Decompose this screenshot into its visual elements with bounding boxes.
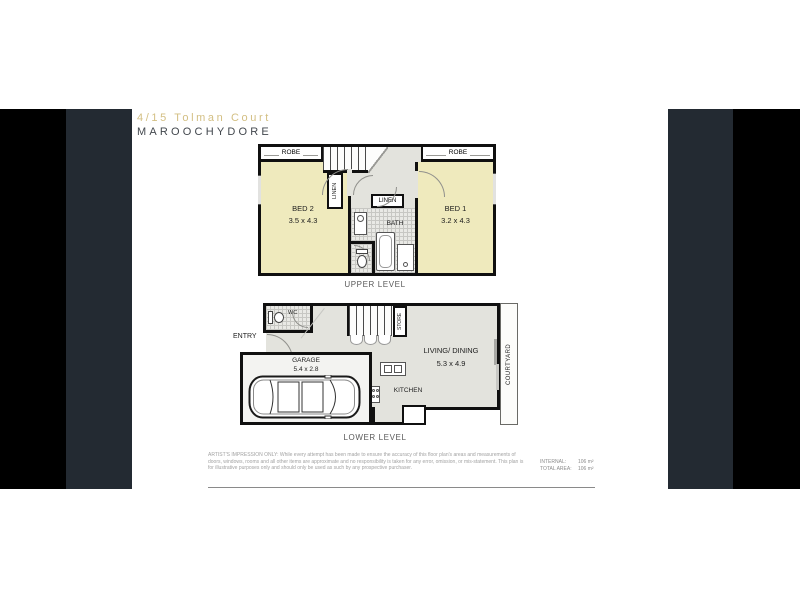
lower-level-caption: LOWER LEVEL [300, 433, 450, 442]
understair-door [364, 335, 377, 345]
total-area-value: 106 m² [578, 466, 594, 473]
island-bench [402, 405, 426, 425]
internal-area-value: 106 m² [578, 459, 594, 466]
bath-wall [372, 241, 375, 273]
left-charcoal-bar [66, 109, 132, 489]
store-label: STORE [397, 313, 403, 330]
car-icon [248, 375, 362, 419]
room-bed1: BED 1 3.2 x 4.3 [418, 162, 493, 273]
robe-right: ROBE [421, 147, 493, 162]
window [258, 175, 261, 205]
door-arc [292, 312, 308, 328]
internal-area-label: INTERNAL: [540, 459, 578, 466]
room-bath: BATH [351, 208, 415, 273]
bed2-dims: 3.5 x 4.3 [261, 216, 345, 225]
entry-label: ENTRY [233, 333, 257, 340]
store-box: STORE [393, 306, 407, 337]
floorplan-page: 4/15 Tolman Court MAROOCHYDORE BED 2 3.5… [0, 0, 800, 600]
page-subtitle: MAROOCHYDORE [137, 126, 272, 138]
robe-left: ROBE [261, 147, 323, 162]
stairs-diagonal [368, 147, 388, 173]
bath-label: BATH [377, 220, 413, 227]
upper-level-plan: BED 2 3.5 x 4.3 ROBE ROBE LINEN BATH [258, 144, 496, 276]
door-arc [419, 171, 445, 197]
bed1-dims: 3.2 x 4.3 [418, 216, 493, 225]
vanity-icon [354, 212, 367, 235]
toilet-icon [268, 310, 284, 325]
total-area-label: TOTAL AREA: [540, 466, 578, 473]
courtyard: COURTYARD [500, 303, 518, 425]
left-black-bar [0, 109, 66, 489]
bath-wall [351, 241, 373, 244]
footer-divider [208, 487, 595, 488]
bathtub-icon [376, 232, 395, 271]
garage-label: GARAGE [243, 357, 369, 364]
area-summary: INTERNAL: 106 m² TOTAL AREA: 106 m² [540, 459, 594, 473]
kitchen-label: KITCHEN [378, 387, 438, 394]
understair-door [378, 335, 391, 345]
stairs-icon [347, 306, 393, 336]
robe-right-label: ROBE [446, 147, 470, 158]
right-charcoal-bar [668, 109, 733, 489]
robe-left-label: ROBE [279, 147, 303, 158]
right-black-bar [733, 109, 800, 489]
upper-level-caption: UPPER LEVEL [300, 280, 450, 289]
disclaimer-text: ARTIST'S IMPRESSION ONLY: While every at… [208, 452, 528, 472]
page-title: 4/15 Tolman Court [137, 112, 271, 124]
courtyard-label: COURTYARD [506, 343, 512, 384]
sliding-door [496, 364, 499, 390]
sink-icon [380, 362, 406, 376]
living-dims: 5.3 x 4.9 [401, 359, 501, 368]
understair-door [350, 335, 363, 345]
door-arc [353, 175, 373, 195]
bed1-label: BED 1 [418, 204, 493, 213]
window [493, 173, 496, 205]
room-garage: GARAGE 5.4 x 2.8 [240, 352, 372, 425]
toilet-icon [355, 249, 369, 271]
shower-icon [397, 244, 414, 271]
garage-dims: 5.4 x 2.8 [243, 366, 369, 373]
sliding-door [494, 339, 497, 365]
living-label: LIVING/ DINING [401, 346, 501, 355]
